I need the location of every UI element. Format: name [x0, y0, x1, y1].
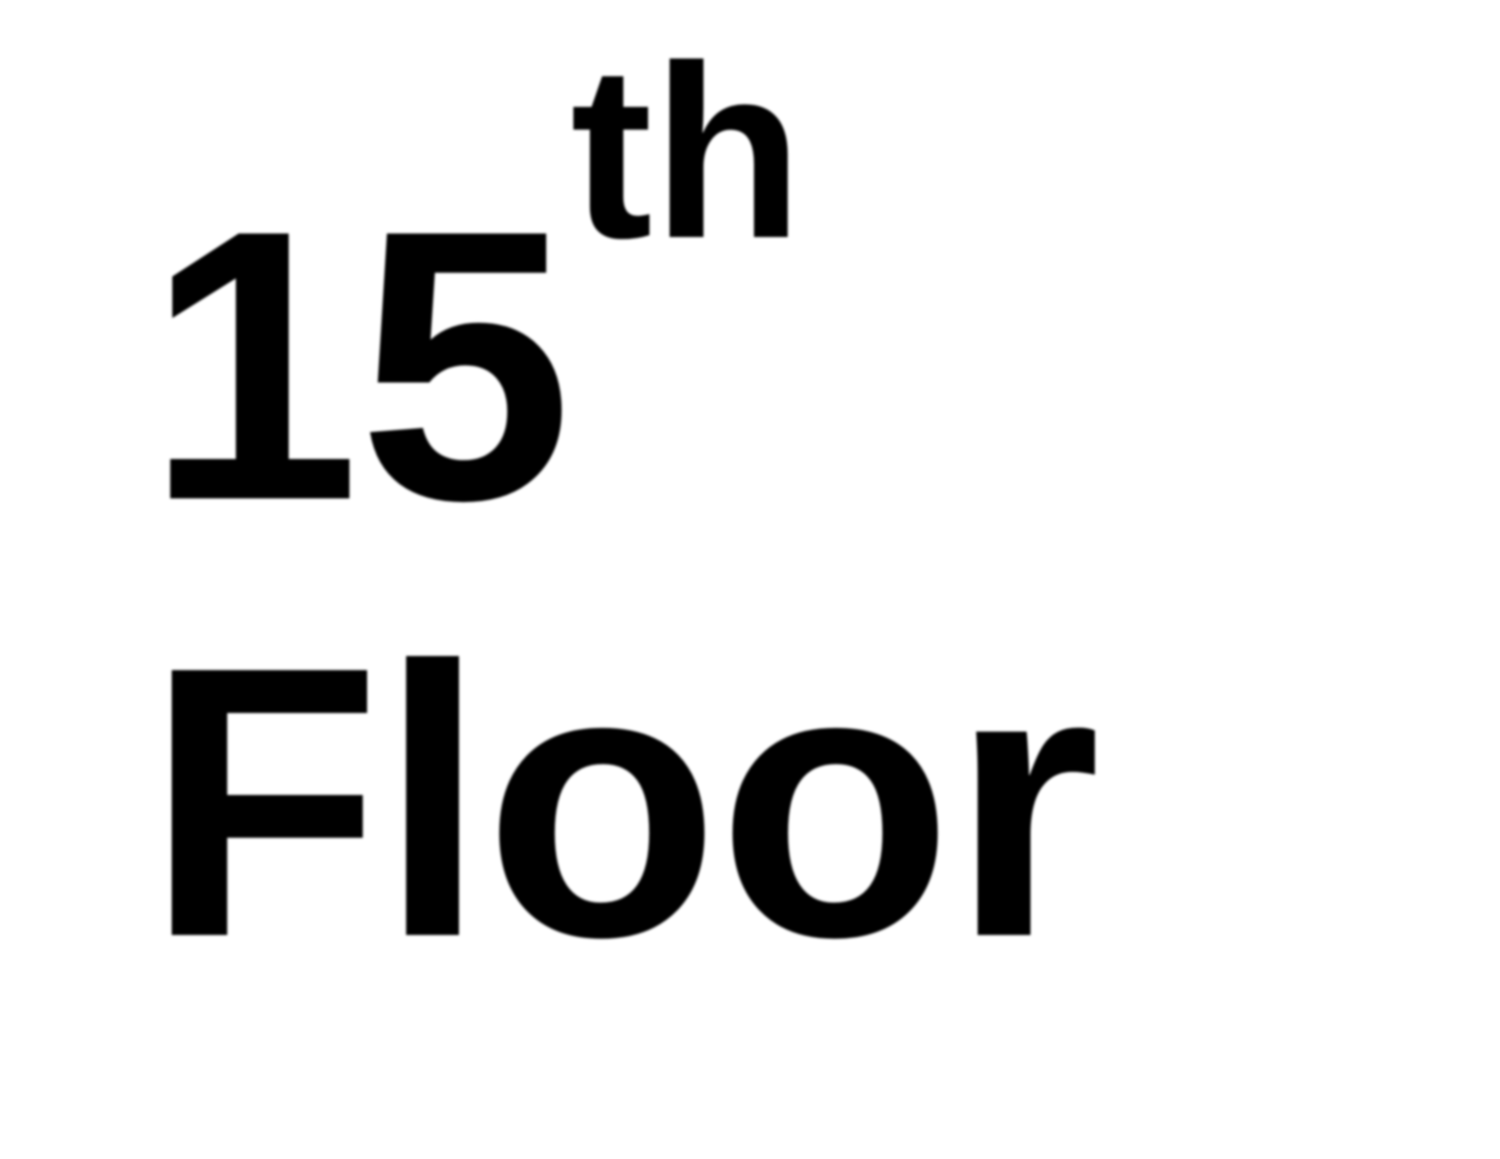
floor-number: 15: [146, 149, 570, 580]
floor-number-line: 15th: [146, 145, 1099, 584]
floor-word: Floor: [146, 584, 1099, 1021]
sign-background: 15th Floor: [0, 0, 1500, 1159]
floor-sign-text: 15th Floor: [146, 145, 1099, 1021]
ordinal-suffix: th: [570, 15, 803, 290]
